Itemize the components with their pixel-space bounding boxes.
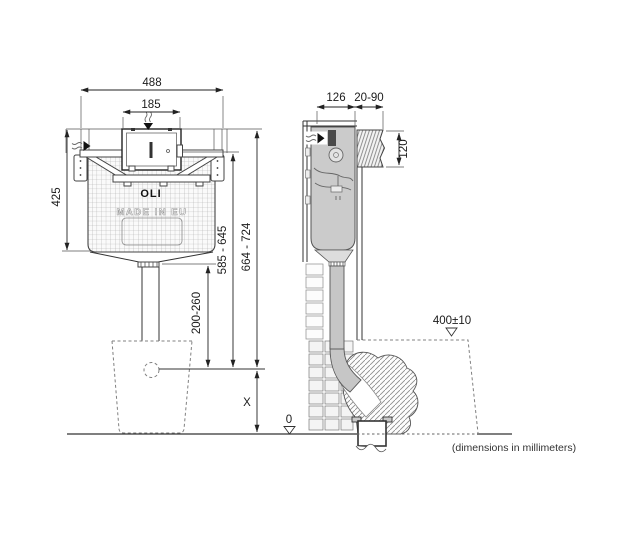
svg-text:X: X — [243, 397, 251, 409]
side-view: 400±10 126 20-90 120 — [303, 92, 478, 452]
water-inlet-side-icon — [304, 132, 327, 145]
datum-triangle-icon — [284, 427, 295, 435]
svg-text:126: 126 — [326, 92, 345, 104]
inlet-connector — [328, 130, 336, 146]
bowl-inlet-hole — [144, 363, 159, 378]
flush-pipe-side — [330, 266, 344, 349]
dim-flush-pipe-range: 200-260 — [162, 264, 216, 367]
units-footnote: (dimensions in millimeters) — [452, 442, 576, 454]
panel-latch — [177, 145, 183, 157]
dim-top-height-range: 664 - 724 — [241, 131, 257, 367]
svg-text:20-90: 20-90 — [354, 92, 383, 104]
svg-text:120: 120 — [398, 139, 410, 158]
floor-datum-marker: 0 — [284, 414, 295, 434]
access-panel — [122, 128, 183, 171]
fill-valve — [329, 148, 343, 162]
svg-text:585 - 645: 585 - 645 — [217, 226, 229, 275]
wall-hatch-block — [357, 130, 385, 167]
svg-text:400±10: 400±10 — [433, 315, 471, 327]
svg-text:185: 185 — [141, 99, 160, 111]
wall-bracket-left — [74, 155, 87, 181]
rim-datum-triangle-icon — [446, 328, 457, 336]
water-flow-down-icon — [144, 112, 154, 130]
oli-logo: OLI — [140, 188, 161, 200]
made-in-eu-text: MADE IN EU — [117, 207, 188, 218]
svg-text:0: 0 — [286, 414, 292, 426]
svg-text:488: 488 — [142, 77, 161, 89]
wall-tiles — [306, 264, 323, 339]
technical-drawing: OLI MADE IN EU 488 — [0, 0, 618, 535]
panel-slot — [150, 142, 153, 158]
tank-funnel-side — [315, 250, 353, 262]
dim-wall-thickness-range: 20-90 — [354, 92, 383, 107]
svg-text:200-260: 200-260 — [191, 292, 203, 334]
svg-text:425: 425 — [51, 187, 63, 206]
dim-recess-height: 120 — [386, 131, 410, 167]
svg-text:664 - 724: 664 - 724 — [241, 222, 253, 271]
dim-bowl-inlet-height: X — [243, 371, 257, 432]
cistern-drawing-svg: OLI MADE IN EU 488 — [0, 0, 618, 535]
cistern-side — [303, 121, 362, 349]
front-view: OLI MADE IN EU 488 — [51, 77, 295, 434]
dim-bowl-rim-height: 400±10 — [433, 315, 471, 336]
toilet-bowl-front — [112, 341, 192, 433]
